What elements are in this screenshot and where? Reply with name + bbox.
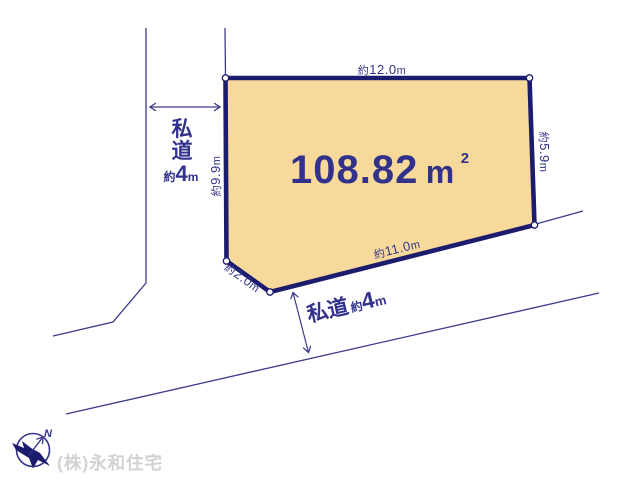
bottom-road-label: 私道約4m xyxy=(304,283,388,326)
compass-north-label: N xyxy=(44,428,53,440)
site-plan: 108.82 m 2 約12.0m 約5.9m 約11.0m 約9.9m 約2.… xyxy=(0,0,640,480)
dimension-right-label: 約5.9m xyxy=(537,132,552,173)
plot-vertex-marker xyxy=(531,222,537,228)
plot-vertex-marker xyxy=(267,289,273,295)
dimension-top-label: 約12.0m xyxy=(358,62,406,77)
company-watermark: (株)永和住宅 xyxy=(57,453,163,473)
plot-vertex-marker xyxy=(526,75,532,81)
bottom-road-upper-edge-line xyxy=(536,211,583,224)
left-road-name-line2: 道 xyxy=(172,139,193,163)
area-unit-power: 2 xyxy=(461,150,470,167)
area-unit: m xyxy=(426,154,455,190)
left-road-width-label: 約4m xyxy=(164,161,199,186)
compass: N xyxy=(12,428,53,469)
left-road-name-line1: 私 xyxy=(172,118,193,141)
left-road-east-edge-extension-line xyxy=(225,28,226,76)
bottom-road-width-arrow xyxy=(293,293,309,353)
area-label: 108.82 m 2 xyxy=(290,148,470,192)
dimension-left-label: 約9.9m xyxy=(208,156,223,197)
plot-vertex-marker xyxy=(222,75,228,81)
left-road-west-edge-line xyxy=(53,28,146,336)
area-value: 108.82 xyxy=(290,148,418,192)
